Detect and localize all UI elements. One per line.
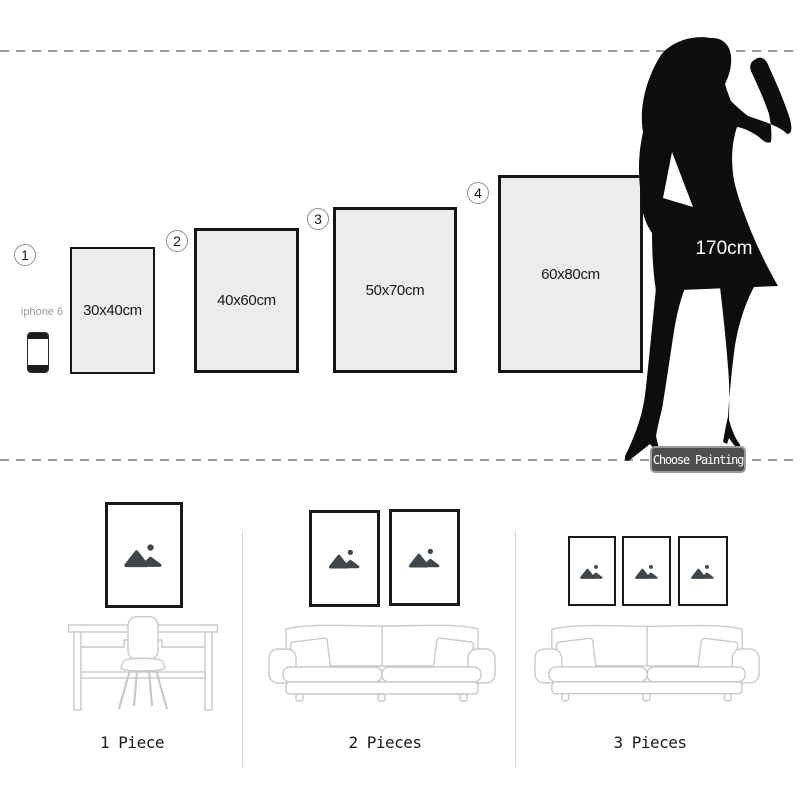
iphone-label: iphone 6 [14,306,70,318]
sofa-illustration [532,614,762,704]
mountain-image-icon [326,547,364,570]
option-4-number-badge: 4 [467,182,489,204]
option-3-number-badge: 3 [307,208,329,230]
size-frame-60x80-label: 60x80cm [541,266,600,283]
size-frame-30x40: 30x40cm [70,247,155,374]
size-frame-40x60-label: 40x60cm [217,292,276,309]
size-frame-50x70: 50x70cm [333,207,457,373]
size-guide-infographic: 1 2 3 4 30x40cm 40x60cm 50x70cm 60x80cm … [0,0,800,800]
mountain-image-icon [578,563,606,580]
mountain-image-icon [633,563,661,580]
size-frame-40x60: 40x60cm [194,228,299,373]
preview-frame-scene3-a [568,536,616,606]
size-frame-60x80: 60x80cm [498,175,643,373]
option-1-number-badge: 1 [14,244,36,266]
size-frame-30x40-label: 30x40cm [83,302,142,319]
preview-frame-scene1 [105,502,183,608]
desk-chair-illustration [66,616,220,712]
option-2-number-badge: 2 [166,230,188,252]
preview-label-3-pieces: 3 Pieces [590,733,710,752]
mountain-image-icon [406,546,444,569]
iphone-home-band [28,365,48,372]
mountain-image-icon [689,563,717,580]
scene-divider-2 [515,531,516,767]
scene-divider-1 [242,531,243,767]
mountain-image-icon [121,541,167,569]
preview-label-1-piece: 1 Piece [72,733,192,752]
choose-painting-button[interactable]: Choose Painting [650,446,746,473]
iphone-icon [27,332,49,373]
sofa-illustration [266,614,498,704]
preview-frame-scene3-b [622,536,671,606]
preview-frame-scene2-b [389,509,460,606]
preview-frame-scene3-c [678,536,728,606]
preview-frame-scene2-a [309,510,380,607]
iphone-screen [28,339,48,365]
model-height-label: 170cm [688,238,760,260]
preview-label-2-pieces: 2 Pieces [325,733,445,752]
size-frame-50x70-label: 50x70cm [366,282,425,299]
